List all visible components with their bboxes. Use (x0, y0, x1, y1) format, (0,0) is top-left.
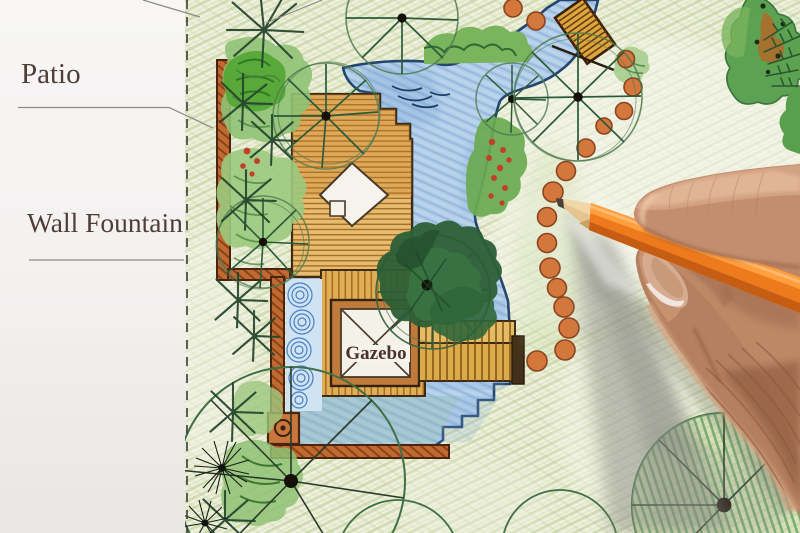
svg-text:Wall Fountain: Wall Fountain (27, 207, 183, 238)
svg-text:Patio: Patio (21, 58, 81, 90)
svg-text:Gazebo: Gazebo (345, 343, 406, 364)
